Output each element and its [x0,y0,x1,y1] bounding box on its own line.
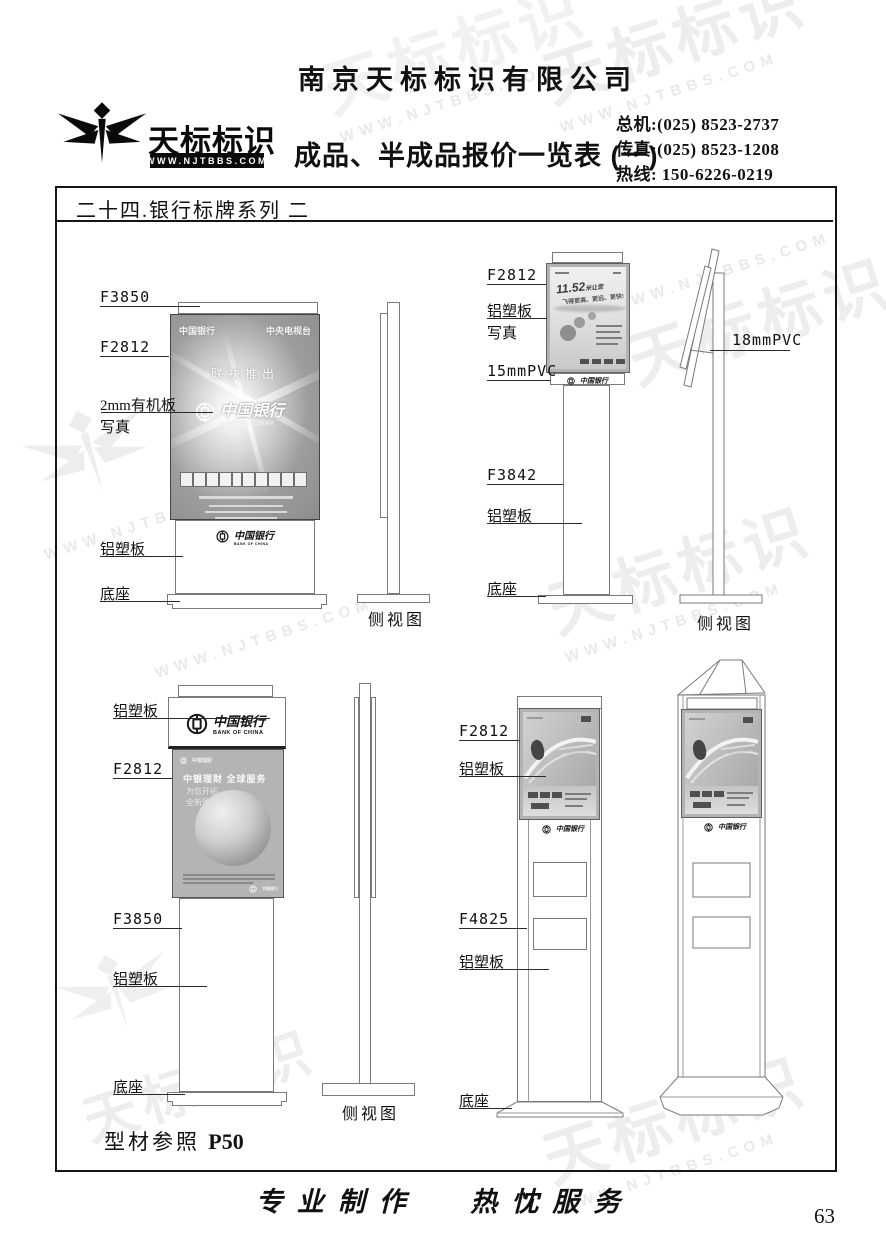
bank-of-china-icon [704,823,713,832]
poster3-brand: 中银理财 [192,757,212,764]
stand4-poster-artwork [523,712,596,816]
bank-of-china-icon [216,530,229,543]
stand3-top-cap [178,685,273,697]
sideview2-drawing [660,240,800,640]
poster2-mascot-art [574,317,585,328]
stand3-bank-logo: 中国银行 BANK OF CHINA [186,711,265,736]
stand4-bank-logo: 中国银行 [542,824,584,834]
label-f2812: F2812 [100,338,150,356]
bank-of-china-icon [567,377,575,385]
stand1-top-cap [178,302,318,314]
label-15mm-pvc: 15mmPVC [487,362,557,380]
contact-hotline: 热线: 150-6226-0219 [616,160,779,185]
stand2-poster-artwork: 11.52米让您 飞得更高、更远、更快! [550,267,626,369]
profile-reference-page: P50 [208,1129,243,1154]
stand1-body: 中国银行 BANK OF CHINA [175,520,315,594]
page-number: 63 [814,1204,835,1229]
contact-block: 总机:(025) 8523-2737 传真:(025) 8523-1208 热线… [616,110,779,185]
bank-of-china-icon [542,825,551,834]
label-f3842: F3842 [487,466,537,484]
sideview1-panel [380,313,388,518]
label-f3850: F3850 [100,288,150,306]
stand4-poster-frame [519,708,600,820]
label-f2812: F2812 [487,266,537,284]
label-f3850: F3850 [113,910,163,928]
stand2-top-cap [552,252,623,263]
stand4-slot2 [533,918,587,950]
dragonfly-logo-icon [56,98,148,182]
stand5-bank-logo: 中国银行 [704,822,746,832]
poster2-airplane-art [554,305,626,312]
label-f2812: F2812 [459,722,509,740]
stand3-column [179,898,274,1092]
stand2-base [538,595,633,604]
sideview1-base [357,594,430,603]
poster1-headline-art [181,473,306,486]
sideview3-panel-right [371,697,376,898]
boc-wealth-icon [180,757,187,764]
page-title: 成品、半成品报价一览表 (一) [294,134,658,173]
poster1-cctv-caption: 中央电视台 [266,324,311,337]
sideview3-caption: 侧视图 [342,1100,399,1124]
stand5-poster-frame [681,709,762,818]
stand4-slot1 [533,862,587,897]
poster2-mascot-art [560,325,576,341]
stand2-column [563,385,610,595]
stand4-base [490,1098,635,1120]
poster1-presents: 联袂推出 [171,365,319,382]
company-name: 南京天标标识有限公司 [298,58,638,97]
stand3-header: 中国银行 BANK OF CHINA [168,697,286,749]
poster3-headline: 中银理财 全球服务 [183,772,267,785]
poster2-mascot-art [588,312,596,320]
stand5-poster-artwork [685,713,758,814]
label-18mm-pvc: 18mmPVC [732,331,802,349]
sideview1-pole [387,302,400,594]
label-f2812: F2812 [113,760,163,778]
profile-reference: 型材参照 P50 [104,1126,244,1156]
sideview2-caption: 侧视图 [697,610,754,634]
contact-phone: 总机:(025) 8523-2737 [616,110,779,135]
stand2-poster-frame: 11.52米让您 飞得更高、更远、更快! [546,263,630,373]
stand1-base-lip [172,604,322,609]
poster3-globe-art [195,790,271,866]
stand3-poster-artwork: 中银理财 中银理财 全球服务 为您开拓 全新理财视界 中国银行 [172,749,284,898]
poster1-bank-caption: 中国银行 [179,324,215,337]
bank-of-china-icon [186,713,208,735]
brand-url: WWW.NJTBBS.COM [146,156,268,166]
contact-fax: 传真:(025) 8523-1208 [616,135,779,160]
section-divider [57,220,833,222]
stand1-poster-artwork: 中国银行 中央电视台 联袂推出 中国银行 BANK OF CHINA [170,314,320,520]
sideview3-base [322,1083,415,1096]
label-f4825: F4825 [459,910,509,928]
sideview3-pole [359,683,371,1093]
stand3-base-lip [172,1101,282,1106]
bank-of-china-icon [249,885,257,893]
footer-slogan: 专业制作 热忱服务 [55,1180,835,1219]
label-photo-print: 写真 [487,322,517,343]
sideview1-caption: 侧视图 [368,606,425,630]
stand2-logo-bar: 中国银行 [550,373,625,385]
label-photo-print: 写真 [100,416,130,437]
catalog-page: 天标标识 WWW.NJTBBS.COM 天标标识 WWW.NJTBBS.COM … [0,0,886,1253]
sideview3-panel-left [354,697,359,898]
brand-url-bar: WWW.NJTBBS.COM [150,153,264,168]
section-title: 二十四.银行标牌系列 二 [76,194,310,223]
stand1-bank-logo: 中国银行 BANK OF CHINA [216,527,274,546]
